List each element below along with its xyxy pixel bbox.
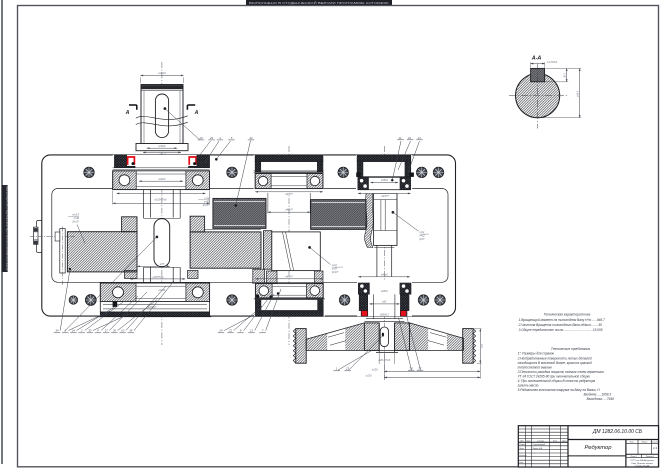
svg-text:Листов 1: Листов 1 — [645, 456, 654, 458]
svg-text:Утв.: Утв. — [519, 462, 524, 464]
svg-text:3.Общее передаточное число....: 3.Общее передаточное число..............… — [519, 328, 603, 332]
svg-text:ø47Н7: ø47Н7 — [285, 193, 293, 196]
svg-text:β=13°: β=13° — [331, 271, 338, 274]
svg-text:ø40к6: ø40к6 — [158, 178, 165, 181]
svg-text:ø47Н7: ø47Н7 — [285, 276, 293, 279]
svg-text:38.3: 38.3 — [564, 73, 566, 78]
svg-text:Подп.: Подп. — [553, 440, 558, 443]
svg-text:ø40к6: ø40к6 — [381, 274, 388, 277]
svg-text:Н.контр.: Н.контр. — [519, 455, 527, 457]
svg-text:ø50Н12: ø50Н12 — [380, 313, 390, 316]
svg-text:17: 17 — [105, 329, 109, 333]
svg-text:ø47Н7: ø47Н7 — [381, 195, 389, 198]
svg-text:ø42: ø42 — [382, 301, 387, 304]
svg-text:ø200: ø200 — [372, 368, 378, 371]
svg-text:1*. Размеры для справок: 1*. Размеры для справок — [518, 352, 555, 356]
svg-text:Дата: Дата — [561, 441, 567, 443]
svg-text:28: 28 — [408, 367, 413, 371]
svg-text:Масса: Масса — [642, 442, 648, 444]
svg-text:35: 35 — [113, 329, 117, 333]
svg-text:2.Частота Вращения тихоходного: 2.Частота Вращения тихоходного Вала об/м… — [518, 323, 603, 327]
svg-text:ø42.4: ø42.4 — [576, 90, 579, 97]
svg-text:β=10°: β=10° — [202, 204, 209, 207]
svg-text:14: 14 — [417, 136, 421, 140]
svg-text:ø30к6: ø30к6 — [159, 145, 166, 148]
svg-text:ВЫПОЛНЕНО В СТУДЕНЧЕСКОЙ ВЕРСИ: ВЫПОЛНЕНО В СТУДЕНЧЕСКОЙ ВЕРСИИ ПРОГРАММ… — [249, 1, 389, 5]
svg-text:24: 24 — [218, 329, 223, 333]
svg-text:4. При окончательной сборки В: 4. При окончательной сборки В полость ре… — [518, 379, 596, 383]
svg-text:2.Необработанные поверхности л: 2.Необработанные поверхности литых детал… — [517, 356, 592, 360]
svg-text:5.Радиальная консольная нагруз: 5.Радиальная консольная нагрузка на Валу… — [518, 388, 601, 392]
svg-text:Масштаб: Масштаб — [651, 442, 661, 444]
svg-text:22: 22 — [228, 329, 233, 333]
svg-text:Группа ТС-69: Группа ТС-69 — [635, 466, 649, 468]
svg-text:Пров.: Пров. — [519, 448, 524, 450]
svg-text:Лист: Лист — [525, 441, 531, 443]
svg-text:ø226: ø226 — [366, 374, 372, 377]
svg-text:14 Р9/h9: 14 Р9/h9 — [547, 61, 558, 64]
svg-text:теплостойкой эмалью: теплостойкой эмалью — [518, 365, 553, 369]
svg-text:ø46Н7: ø46Н7 — [285, 209, 293, 212]
svg-text:Выходном......7648: Выходном......7648 — [587, 397, 615, 401]
svg-text:ø35к6: ø35к6 — [381, 179, 388, 182]
svg-text:19: 19 — [199, 136, 203, 140]
svg-text:10: 10 — [121, 329, 125, 333]
svg-text:Каф. Детали машин: Каф. Детали машин — [632, 462, 654, 465]
svg-text:А: А — [125, 110, 130, 116]
svg-text:34: 34 — [55, 329, 59, 333]
svg-text:β=12°: β=12° — [72, 221, 79, 224]
svg-text:23: 23 — [345, 367, 350, 371]
svg-text:ø45Н7/к6: ø45Н7/к6 — [153, 276, 164, 279]
svg-text:Редуктор: Редуктор — [584, 445, 612, 451]
svg-text:β=8°: β=8° — [419, 238, 425, 241]
svg-text:Лит.: Лит. — [629, 442, 635, 444]
svg-text:№ докум.: № докум. — [537, 440, 545, 443]
svg-text:Фомин Н.В: Фомин Н.В — [533, 447, 543, 450]
svg-text:33: 33 — [88, 329, 92, 333]
svg-text:21: 21 — [249, 329, 254, 333]
svg-text:А-А: А-А — [531, 56, 542, 62]
svg-text:1.Вращающий момент на тихоходн: 1.Вращающий момент на тихоходном Валу Н*… — [519, 318, 605, 322]
svg-text:32: 32 — [249, 136, 253, 140]
svg-text:ø30 Н7/к6: ø30 Н7/к6 — [378, 358, 390, 362]
svg-text:Входном......1858.3: Входном......1858.3 — [584, 393, 612, 397]
svg-text:27: 27 — [417, 367, 422, 371]
svg-text:20: 20 — [209, 136, 214, 140]
svg-text:38: 38 — [129, 329, 133, 333]
svg-text:ДМ 1282.06.10.00 СБ: ДМ 1282.06.10.00 СБ — [592, 429, 643, 435]
svg-text:16: 16 — [72, 329, 76, 333]
svg-text:залить масло.: залить масло. — [517, 384, 540, 388]
svg-text:Техническая характеристика: Техническая характеристика — [544, 312, 591, 316]
svg-text:ø45к6: ø45к6 — [381, 290, 388, 293]
svg-text:ø100Н7/к6: ø100Н7/к6 — [154, 199, 167, 202]
svg-text:ø78: ø78 — [160, 263, 165, 266]
svg-text:находящиеся В масляной Ванне,: находящиеся В масляной Ванне, красить кр… — [518, 361, 592, 365]
svg-text:ø36к6: ø36к6 — [158, 71, 166, 75]
svg-text:ø100К7: ø100К7 — [148, 306, 157, 309]
svg-text:Разраб.: Разраб. — [519, 444, 526, 446]
svg-text:3.Плоскости разъёма покрыть то: 3.Плоскости разъёма покрыть тонким слоем… — [518, 370, 604, 374]
svg-text:УТ-34 ГОСТ 24285-80 при оконча: УТ-34 ГОСТ 24285-80 при окончательной сб… — [518, 374, 591, 378]
svg-text:РГТУ им И.А Андреева: РГТУ им И.А Андреева — [631, 459, 655, 462]
svg-text:11: 11 — [398, 136, 401, 140]
svg-text:22: 22 — [407, 136, 412, 140]
svg-text:1:1: 1:1 — [653, 446, 657, 450]
svg-text:2: 2 — [80, 329, 83, 333]
svg-text:Технические требования: Технические требования — [551, 347, 590, 351]
svg-text:А: А — [194, 110, 199, 116]
svg-text:Сыроватцкий: Сыроватцкий — [533, 443, 546, 446]
svg-text:Лист 1: Лист 1 — [629, 456, 636, 458]
svg-text:ВЫПОЛНЕНО В СТУДЕНЧЕСКОЙ ВЕРСИ: ВЫПОЛНЕНО В СТУДЕНЧЕСКОЙ ВЕРСИИ ПРОГРАММ… — [5, 187, 8, 272]
